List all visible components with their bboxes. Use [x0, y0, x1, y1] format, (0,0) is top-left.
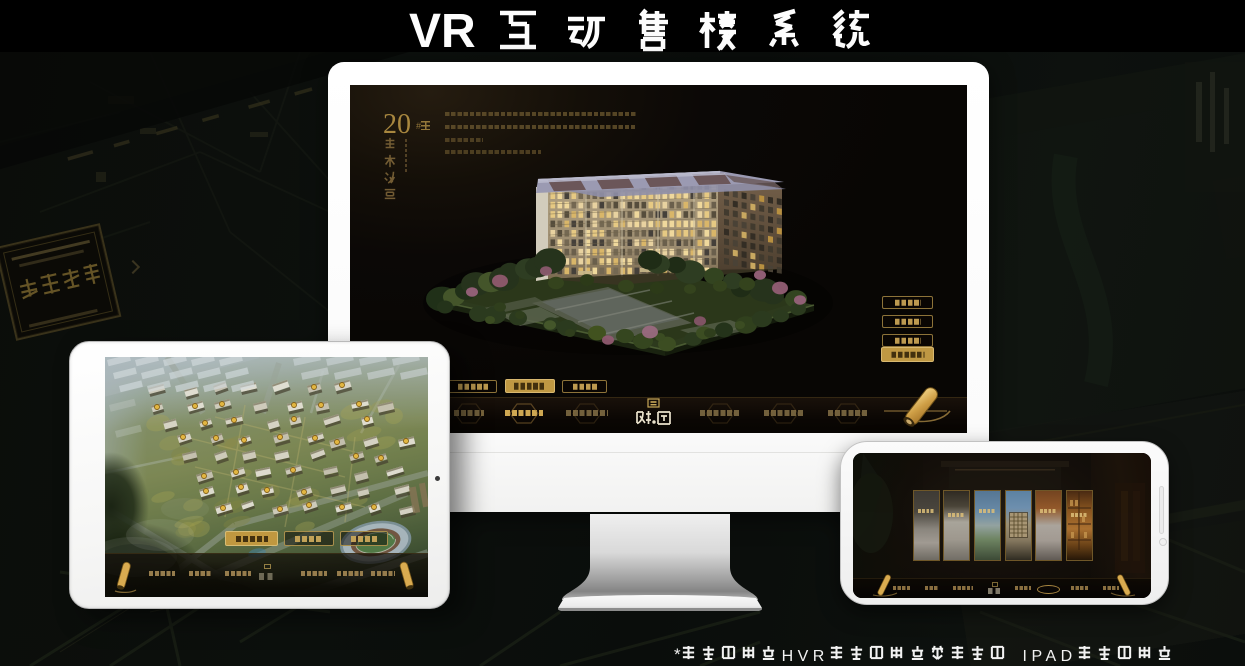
svg-text:VR: VR — [409, 5, 476, 56]
